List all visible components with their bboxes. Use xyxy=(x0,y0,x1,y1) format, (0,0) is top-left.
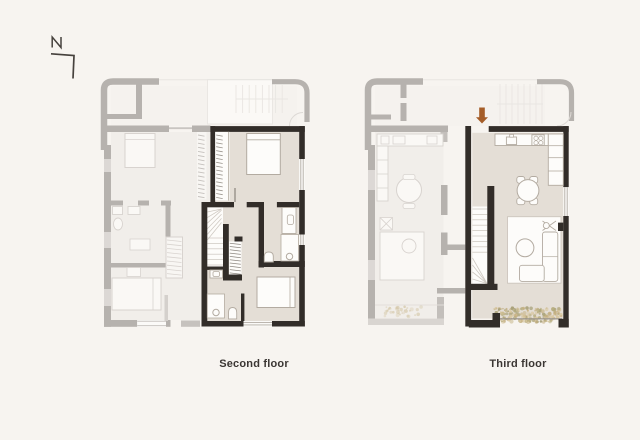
svg-text:Third floor: Third floor xyxy=(489,358,547,370)
svg-text:Second floor: Second floor xyxy=(219,358,289,370)
